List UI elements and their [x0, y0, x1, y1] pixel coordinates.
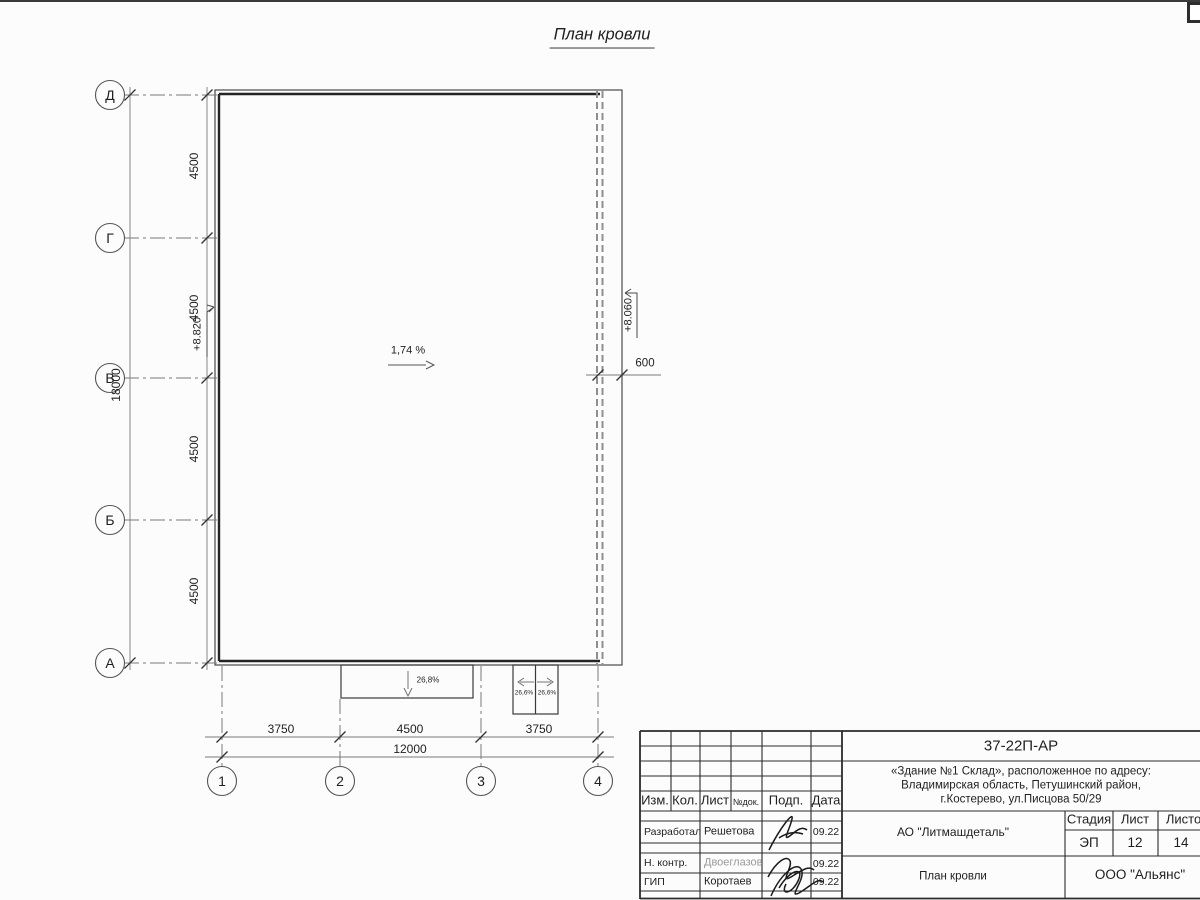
dim-left-total: 18000 [110, 368, 124, 401]
tb-col-ndok: №док. [733, 797, 759, 807]
tb-project-line1: «Здание №1 Склад», расположенное по адре… [891, 765, 1151, 778]
tb-date-gip: 09.22 [813, 876, 839, 888]
dim-bottom-3: 3750 [526, 723, 553, 737]
tb-org: ООО "Альянс" [1095, 867, 1185, 883]
elevation-left: +8.820 [192, 317, 205, 351]
tb-col-data: Дата [812, 794, 841, 809]
canopy-slope-right: 26,6% [538, 689, 556, 696]
tb-role-ncontrol: Н. контр. [644, 857, 687, 869]
slope-label: 1,74 % [391, 345, 425, 358]
canopy-slope-left: 26,6% [515, 689, 533, 696]
slope-arrow [388, 361, 434, 369]
axis-col-1: 1 [218, 773, 226, 789]
axis-row-a: А [105, 655, 114, 671]
axis-col-4: 4 [594, 773, 602, 789]
tb-role-gip: ГИП [644, 876, 665, 888]
elevation-right: +8.060 [623, 298, 636, 332]
drawing-title: План кровли [550, 26, 655, 49]
tb-stage-value: ЭП [1079, 835, 1098, 851]
axis-col-2: 2 [336, 773, 344, 789]
dim-bottom-2: 4500 [397, 723, 424, 737]
canopy-slope-wide: 26,8% [417, 675, 440, 684]
dim-bottom-total: 12000 [393, 743, 426, 757]
dim-left-4: 4500 [188, 578, 202, 605]
axis-col-3: 3 [477, 773, 485, 789]
dim-left-3: 4500 [188, 436, 202, 463]
tb-project-line3: г.Костерево, ул.Писцова 50/29 [941, 793, 1102, 806]
tb-name-developer: Решетова [704, 826, 754, 839]
tb-sheet-title: План кровли [919, 870, 987, 883]
tb-col-izm: Изм. [641, 794, 669, 809]
tb-sheet-value: 12 [1127, 835, 1142, 851]
tb-col-podp: Подп. [769, 794, 804, 809]
tb-sheet-label: Лист [1121, 813, 1149, 828]
drawing-sheet: План кровли Д Г В Б А 1 2 3 4 4500 4500 … [0, 0, 1200, 900]
tb-company: АО "Литмашдеталь" [897, 826, 1009, 840]
tb-sheets-label: Листов [1166, 813, 1200, 828]
tb-role-developer: Разработал [644, 826, 701, 838]
tb-date-ncontrol: 09.22 [813, 858, 839, 870]
dim-left-1: 4500 [188, 153, 202, 180]
tb-sheets-value: 14 [1173, 835, 1188, 851]
tb-date-developer: 09.22 [813, 826, 839, 838]
tb-name-gip: Коротаев [704, 876, 752, 889]
tb-name-ncontrol: Двоеглазов [704, 857, 762, 870]
tb-project-line2: Владимирская область, Петушинский район, [901, 779, 1141, 792]
tb-stage-label: Стадия [1067, 813, 1111, 828]
dim-bottom-1: 3750 [268, 723, 295, 737]
axis-row-b: Б [105, 512, 114, 528]
tb-doc-number: 37-22П-АР [984, 737, 1058, 754]
dimension-lines [130, 87, 661, 757]
dim-overhang: 600 [635, 357, 654, 370]
building-outline [215, 90, 622, 665]
axis-row-g: Г [106, 230, 114, 246]
tb-col-list: Лист [701, 794, 729, 809]
axis-row-d: Д [105, 87, 114, 103]
tb-col-kol: Кол. [672, 794, 698, 809]
